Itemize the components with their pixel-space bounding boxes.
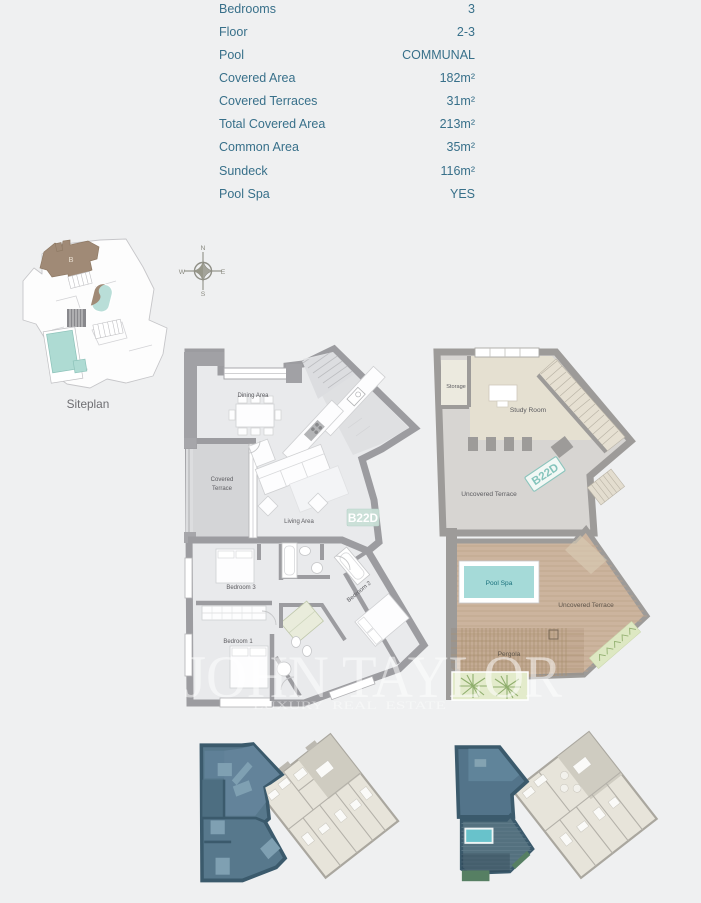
- svg-text:S: S: [201, 291, 206, 298]
- svg-text:Dining Area: Dining Area: [237, 393, 269, 399]
- svg-text:35m²: 35m²: [447, 140, 475, 154]
- svg-text:Uncovered Terrace: Uncovered Terrace: [461, 491, 517, 498]
- svg-text:Common Area: Common Area: [219, 140, 299, 154]
- svg-text:213m²: 213m²: [440, 117, 475, 131]
- svg-text:Sundeck: Sundeck: [219, 164, 268, 178]
- svg-text:LUXURY REAL ESTATE: LUXURY REAL ESTATE: [253, 700, 446, 712]
- svg-text:Bedroom 3: Bedroom 3: [226, 585, 256, 591]
- svg-text:182m²: 182m²: [440, 71, 475, 85]
- svg-text:Siteplan: Siteplan: [67, 397, 110, 411]
- svg-text:Covered Area: Covered Area: [219, 71, 295, 85]
- svg-text:Pool Spa: Pool Spa: [486, 580, 513, 587]
- svg-text:Study Room: Study Room: [510, 407, 547, 414]
- svg-text:Bedrooms: Bedrooms: [219, 2, 276, 16]
- svg-text:Terrace: Terrace: [212, 486, 233, 492]
- svg-text:Uncovered Terrace: Uncovered Terrace: [558, 602, 614, 609]
- svg-text:Total Covered Area: Total Covered Area: [219, 117, 325, 131]
- svg-text:E: E: [221, 269, 226, 276]
- svg-text:Floor: Floor: [219, 25, 247, 39]
- svg-text:B22D: B22D: [348, 511, 379, 525]
- svg-text:2-3: 2-3: [457, 25, 475, 39]
- svg-text:3: 3: [468, 2, 475, 16]
- svg-text:Pool: Pool: [219, 48, 244, 62]
- svg-text:COMMUNAL: COMMUNAL: [402, 48, 475, 62]
- svg-text:YES: YES: [450, 187, 475, 201]
- svg-text:W: W: [179, 269, 186, 276]
- svg-text:B: B: [68, 255, 73, 264]
- svg-text:116m²: 116m²: [440, 164, 475, 178]
- svg-text:N: N: [201, 245, 206, 252]
- svg-text:31m²: 31m²: [447, 94, 475, 108]
- svg-text:Pool Spa: Pool Spa: [219, 187, 270, 201]
- svg-text:Covered Terraces: Covered Terraces: [219, 94, 317, 108]
- svg-text:Living Area: Living Area: [284, 519, 314, 525]
- svg-text:Covered: Covered: [211, 477, 234, 483]
- svg-text:Storage: Storage: [446, 384, 466, 390]
